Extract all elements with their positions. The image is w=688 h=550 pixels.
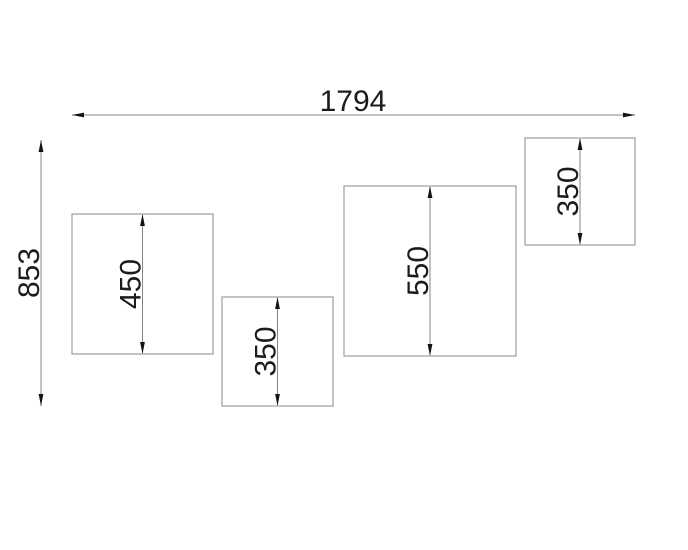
overall-width-label: 1794	[320, 85, 387, 118]
panel-1: 450	[72, 214, 213, 354]
arrowhead-up-icon	[578, 138, 583, 150]
panel-1-height-label: 450	[115, 259, 148, 309]
arrowhead-down-icon	[578, 233, 583, 245]
panel-3: 550	[344, 186, 516, 356]
panel-4: 350	[525, 138, 635, 245]
overall-height-label: 853	[13, 248, 46, 298]
arrowhead-down-icon	[428, 344, 433, 356]
arrowhead-right-icon	[623, 113, 635, 118]
panel-3-height-label: 550	[402, 246, 435, 296]
arrowhead-up-icon	[39, 140, 44, 152]
arrowhead-up-icon	[428, 186, 433, 198]
drawing-canvas: 1794 853 450 350	[0, 0, 688, 550]
arrowhead-down-icon	[275, 394, 280, 406]
arrowhead-up-icon	[140, 214, 145, 226]
dimension-overall-width: 1794	[72, 85, 635, 118]
arrowhead-up-icon	[275, 297, 280, 309]
panel-2-height-label: 350	[250, 326, 283, 376]
arrowhead-left-icon	[72, 113, 84, 118]
arrowhead-down-icon	[140, 342, 145, 354]
dimension-overall-height: 853	[13, 140, 46, 406]
panel-4-height-label: 350	[552, 166, 585, 216]
arrowhead-down-icon	[39, 394, 44, 406]
panel-2: 350	[222, 297, 333, 406]
technical-drawing-svg: 1794 853 450 350	[0, 0, 688, 550]
